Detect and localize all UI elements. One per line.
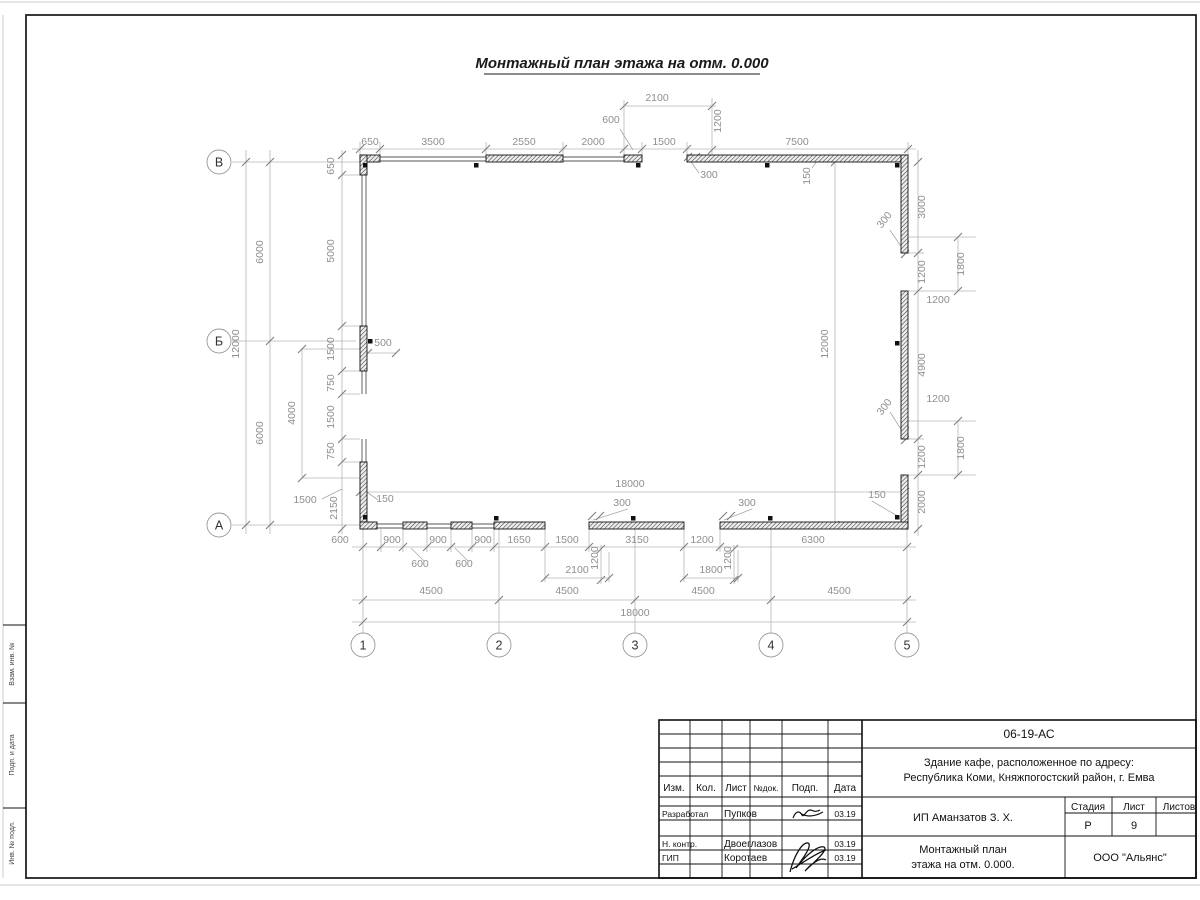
dim-label: 600 [602,114,620,126]
dim-label: 2100 [645,92,669,104]
dim-label: 1200 [916,445,928,469]
dim-label: 1200 [690,534,714,546]
dim-label: 12000 [230,329,242,358]
wall-segment [451,522,472,529]
dim-label: 1500 [652,136,676,148]
dim-label: 3000 [916,195,928,219]
strip-label-podp: Подп. и дата [9,734,16,775]
connection-plate [363,515,368,520]
row-date: 03.19 [834,809,856,819]
dim-label: 150 [376,493,394,505]
drawing-frame [26,15,1196,878]
dim-label: 6000 [254,240,266,264]
drawing-canvas: Взам. инв. № Подп. и дата Инв. № подл. М… [0,0,1200,900]
row-role: Н. контр. [662,839,697,849]
wall-segment [486,155,563,162]
dim-label: 900 [474,534,492,546]
wall-segment [360,522,377,529]
object-name-line2: Республика Коми, Княжпогостский район, г… [903,772,1155,784]
connection-plate [765,163,770,168]
sheet-title-line1: Монтажный план [919,844,1007,856]
dim-label: 6000 [254,421,266,445]
axis-label: В [215,156,223,170]
signature-icon [790,843,826,872]
sheet-number: 9 [1131,820,1137,832]
axis-label: Б [215,335,223,349]
wall-segment [901,475,908,529]
axis-label: 1 [360,639,367,653]
dim-label: 900 [429,534,447,546]
dim-label: 1800 [955,252,967,276]
strip-label-inv: Инв. № подл. [9,821,16,865]
dim-label: 12000 [819,329,831,358]
company-name: ООО "Альянс" [1093,852,1167,864]
connection-plate [494,516,499,521]
dim-label: 650 [361,136,379,148]
dim-label: 300 [738,497,756,509]
row-name: Коротаев [724,853,767,864]
dim-label: 750 [325,374,337,392]
col-kol: Кол. [696,783,716,794]
dim-label: 4500 [419,585,443,597]
dim-label: 3150 [625,534,649,546]
connection-plate [636,163,641,168]
dim-label: 7500 [785,136,809,148]
dim-label: 1800 [955,436,967,460]
dimension-tick [596,512,604,520]
wall-segment [901,155,908,253]
drawing-sheet: Взам. инв. № Подп. и дата Инв. № подл. М… [0,0,1200,900]
dim-label: 18000 [620,607,649,619]
dim-label: 1500 [293,494,317,506]
dimension-tick [588,512,596,520]
dim-label: 2550 [512,136,536,148]
col-list: Лист [725,783,747,794]
sheet-title-line2: этажа на отм. 0.000. [911,859,1014,871]
dim-label: 4500 [827,585,851,597]
dim-label: 750 [325,442,337,460]
stage-label: Стадия [1071,802,1105,813]
dim-label: 2000 [916,490,928,514]
wall-segment [901,291,908,439]
dim-label: 1650 [507,534,531,546]
dim-label: 1200 [712,109,724,133]
dim-label: 1200 [722,546,734,570]
dim-label: 2150 [328,496,340,520]
row-role: ГИП [662,853,679,863]
dim-label: 650 [325,157,337,175]
axis-label: 4 [768,639,775,653]
floor-plan: 6503500255020001500750060021001200300150… [207,92,976,657]
dim-label: 4900 [916,353,928,377]
dim-label: 1500 [555,534,579,546]
dim-label: 300 [875,209,895,230]
dim-label: 2000 [581,136,605,148]
dim-label: 600 [331,534,349,546]
strip-label-vzam: Взам. инв. № [9,642,16,685]
wall-segment [494,522,545,529]
axis-label: А [215,519,224,533]
dimension-tick [719,512,727,520]
signature-icon [793,810,823,818]
axis-label: 5 [904,639,911,653]
dim-label: 500 [374,337,392,349]
dim-label: 150 [868,489,886,501]
leader-line [872,501,899,517]
connection-plate [895,163,900,168]
dim-label: 1800 [699,564,723,576]
dim-label: 1200 [926,294,950,306]
col-podp: Подп. [792,783,819,794]
row-role: Разработал [662,809,708,819]
dim-label: 18000 [615,478,644,490]
object-name-line1: Здание кафе, расположенное по адресу: [924,757,1134,769]
connection-plate [474,163,479,168]
axis-label: 2 [496,639,503,653]
row-date: 03.19 [834,853,856,863]
dim-label: 4000 [286,401,298,425]
sheets-label: Листов [1163,802,1196,813]
dim-label: 1200 [926,393,950,405]
dim-label: 4500 [691,585,715,597]
connection-plate [368,339,373,344]
col-data: Дата [834,783,857,794]
connection-plate [895,515,900,520]
dim-label: 1200 [916,260,928,284]
wall-segment [360,326,367,371]
stage-value: Р [1084,820,1091,832]
axis-label: 3 [632,639,639,653]
dim-label: 1200 [589,546,601,570]
page-title: Монтажный план этажа на отм. 0.000 [475,55,769,72]
connection-plate [768,516,773,521]
sheet-label: Лист [1123,802,1145,813]
client-name: ИП Аманзатов З. Х. [913,812,1013,824]
dim-label: 1500 [325,405,337,429]
frame-side-strip: Взам. инв. № Подп. и дата Инв. № подл. [3,15,26,878]
connection-plate [631,516,636,521]
dim-label: 6300 [801,534,825,546]
wall-segment [589,522,684,529]
connection-plate [363,163,368,168]
dim-label: 600 [455,558,473,570]
col-ndok: №док. [754,783,779,793]
row-name: Пупков [724,809,757,820]
connection-plate [895,341,900,346]
wall-segment [687,155,908,162]
wall-segment [624,155,642,162]
row-name: Двоеглазов [724,839,777,850]
wall-segment [403,522,427,529]
dim-label: 3500 [421,136,445,148]
dim-label: 1500 [325,337,337,361]
dim-label: 5000 [325,239,337,263]
dim-label: 900 [383,534,401,546]
col-izm: Изм. [663,783,684,794]
dim-label: 300 [613,497,631,509]
dim-label: 4500 [555,585,579,597]
doc-number: 06-19-АС [1003,727,1054,741]
dim-label: 300 [700,169,718,181]
dim-label: 600 [411,558,429,570]
wall-segment [720,522,908,529]
dim-label: 150 [801,167,813,185]
dim-label: 2100 [565,564,589,576]
row-date: 03.19 [834,839,856,849]
